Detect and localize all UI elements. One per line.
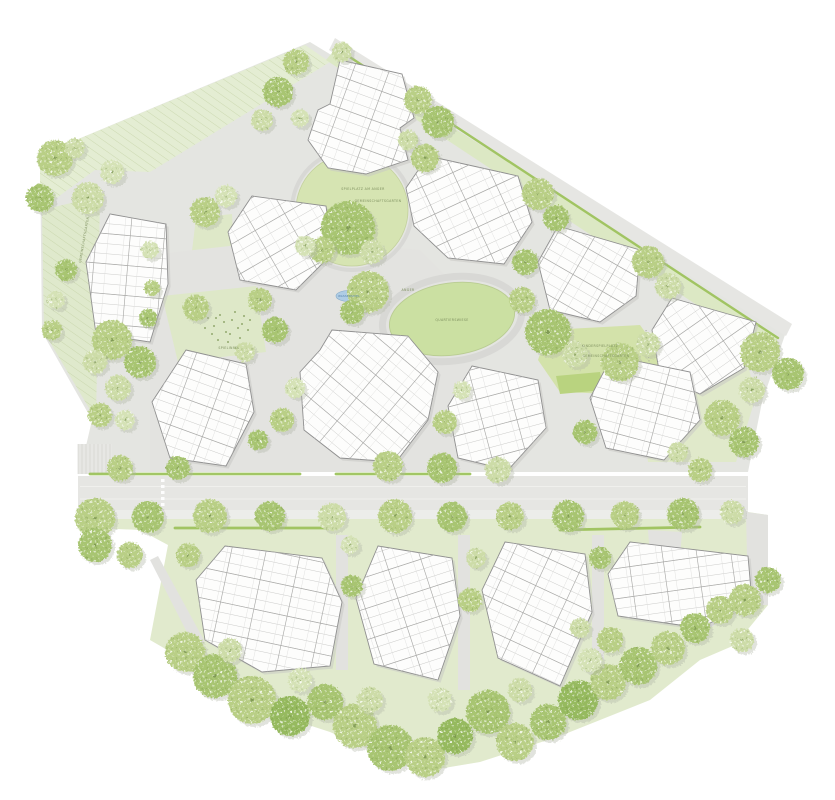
tree-trunk-dot [475,557,477,559]
tree-trunk-dot [637,665,640,668]
tree-trunk-dot [204,211,206,213]
tree-trunk-dot [741,639,743,641]
tree-trunk-dot [39,197,41,199]
tree-trunk-dot [346,226,350,230]
tree-trunk-dot [751,389,753,391]
tree-trunk-dot [424,157,426,159]
tree-trunk-dot [281,419,283,421]
tree-trunk-dot [682,513,684,515]
tree-trunk-dot [213,674,216,677]
tree-trunk-dot [387,465,389,467]
tree-trunk-dot [147,516,149,518]
plan-label: SPIELINSEL [218,346,239,350]
tree-trunk-dot [119,467,121,469]
play-equipment-dot [241,323,243,325]
play-equipment-dot [237,327,239,329]
tree-trunk-dot [294,387,296,389]
tree-trunk-dot [353,724,356,727]
crosswalk-dash [161,485,165,488]
tree-trunk-dot [65,269,67,271]
tree-trunk-dot [324,701,327,704]
tree-trunk-dot [295,61,297,63]
tree-trunk-dot [259,299,261,301]
tree-trunk-dot [257,439,259,441]
tree-trunk-dot [584,431,586,433]
tree-trunk-dot [269,515,271,517]
tree-trunk-dot [147,317,149,319]
tree-trunk-dot [94,544,96,546]
tree-trunk-dot [609,639,611,641]
tree-trunk-dot [261,119,263,121]
tree-trunk-dot [151,287,153,289]
play-equipment-dot [219,314,221,316]
tree-trunk-dot [719,609,721,611]
west-meadow-strip-hatch [42,196,100,420]
tree [772,358,807,393]
play-equipment-dot [243,315,245,317]
tree-trunk-dot [209,515,211,517]
tree-trunk-dot [555,217,557,219]
tree-trunk-dot [509,515,511,517]
plan-label: GEMEINSCHAFTSGARTEN [355,199,402,203]
tree-trunk-dot [521,299,523,301]
plan-label: ANGER [401,288,414,292]
tree-trunk-dot [51,329,53,331]
plan-label: GEMEINSCHAFTSGARTEN [583,354,630,358]
tree-trunk-dot [624,514,626,516]
plan-label: KINDERSPIELPLATZ [582,344,619,348]
site-plan-canvas: SPIELPLATZ AM ANGERGEMEINSCHAFTSGARTENQU… [0,0,835,800]
play-equipment-dot [231,319,233,321]
tree-trunk-dot [331,516,333,518]
tree-trunk-dot [187,554,189,556]
tree [730,628,757,655]
play-equipment-dot [234,311,236,313]
tree-trunk-dot [694,627,696,629]
tree-trunk-dot [667,285,669,287]
tree-trunk-dot [454,735,457,738]
tree-trunk-dot [111,171,113,173]
tree-trunk-dot [524,261,526,263]
crosswalk-dash [161,479,165,482]
tree-trunk-dot [547,721,550,724]
tree-trunk-dot [497,469,499,471]
play-equipment-dot [225,331,227,333]
tree-trunk-dot [731,511,733,513]
play-equipment-dot [217,339,219,341]
tree-trunk-dot [244,351,246,353]
tree-trunk-dot [519,689,521,691]
tree-trunk-dot [437,121,439,123]
tree-trunk-dot [394,515,396,517]
play-equipment-dot [211,333,213,335]
play-equipment-dot [229,333,231,335]
tree-trunk-dot [647,261,649,263]
tree-trunk-dot [417,99,419,101]
tree-trunk-dot [341,51,343,53]
crosswalk-dash [161,491,165,494]
plan-label: QUARTIERSWIESE [435,318,468,322]
play-equipment-dot [223,321,225,323]
play-equipment-dot [239,337,241,339]
tree-trunk-dot [424,756,427,759]
tree-trunk-dot [369,699,371,701]
tree-trunk-dot [514,741,517,744]
tree-trunk-dot [99,414,101,416]
tree-trunk-dot [277,91,279,93]
tree-trunk-dot [486,710,489,713]
tree-trunk-dot [94,517,97,520]
tree-trunk-dot [139,361,141,363]
site-plan-page: SPIELPLATZ AM ANGERGEMEINSCHAFTSGARTENQU… [0,0,835,800]
tree-trunk-dot [74,147,76,149]
play-equipment-dot [249,319,251,321]
tree-trunk-dot [667,647,669,649]
tree-trunk-dot [349,544,351,546]
room-partition-line [772,456,804,684]
tree-trunk-dot [677,451,679,453]
tree-trunk-dot [388,746,391,749]
tree-trunk-dot [744,599,746,601]
tree-trunk-dot [759,351,762,354]
play-equipment-dot [204,327,206,329]
crosswalk-dash [161,503,165,506]
tree-trunk-dot [274,329,276,331]
tree-trunk-dot [407,139,409,141]
tree-trunk-dot [444,421,446,423]
parking-bay [78,444,112,474]
tree-trunk-dot [469,599,471,601]
tree-trunk-dot [321,249,323,251]
tree-trunk-dot [567,515,569,517]
tree-trunk-dot [699,469,701,471]
tree-trunk-dot [94,361,96,363]
tree-trunk-dot [225,195,227,197]
tree-trunk-dot [767,579,769,581]
tree-trunk-dot [195,307,197,309]
crosswalk-dash [161,497,165,500]
tree-trunk-dot [299,679,301,681]
tree-trunk-dot [599,557,601,559]
tree-trunk-dot [461,389,463,391]
tree-trunk-dot [439,699,441,701]
tree-trunk-dot [647,343,649,345]
tree-trunk-dot [129,554,131,556]
tree-trunk-dot [54,157,57,160]
tree-trunk-dot [184,651,187,654]
tree-trunk-dot [124,419,126,421]
tree-trunk-dot [55,299,57,301]
tree-trunk-dot [589,659,591,661]
tree-trunk-dot [367,291,370,294]
tree-trunk-dot [743,441,745,443]
play-equipment-dot [227,341,229,343]
tree-trunk-dot [579,627,581,629]
tree-trunk-dot [537,193,539,195]
play-equipment-dot [215,317,217,319]
tree-trunk-dot [117,387,119,389]
tree-trunk-dot [721,417,724,420]
plan-label: WASSERSPIEL [338,294,360,298]
tree-trunk-dot [371,251,373,253]
tree-trunk-dot [87,197,89,199]
tree-trunk-dot [250,698,253,701]
tree-trunk-dot [229,649,231,651]
tree-trunk-dot [111,339,114,342]
tree-trunk-dot [289,715,292,718]
tree-trunk-dot [304,245,306,247]
play-equipment-dot [213,325,215,327]
tree-trunk-dot [619,361,622,364]
tree-trunk-dot [451,516,453,518]
tree-trunk-dot [351,311,353,313]
tree-trunk-dot [351,585,353,587]
tree-trunk-dot [177,467,179,469]
tree-trunk-dot [149,249,151,251]
tree-trunk-dot [546,330,549,333]
tree-trunk-dot [577,699,580,702]
tree-trunk-dot [574,353,576,355]
play-equipment-dot [247,329,249,331]
tree-trunk-dot [607,681,610,684]
tree-trunk-dot [299,117,301,119]
plan-label: SPIELPLATZ AM ANGER [341,187,385,191]
tree-trunk-dot [441,467,443,469]
tree-trunk-dot [787,373,789,375]
tree [117,542,146,571]
